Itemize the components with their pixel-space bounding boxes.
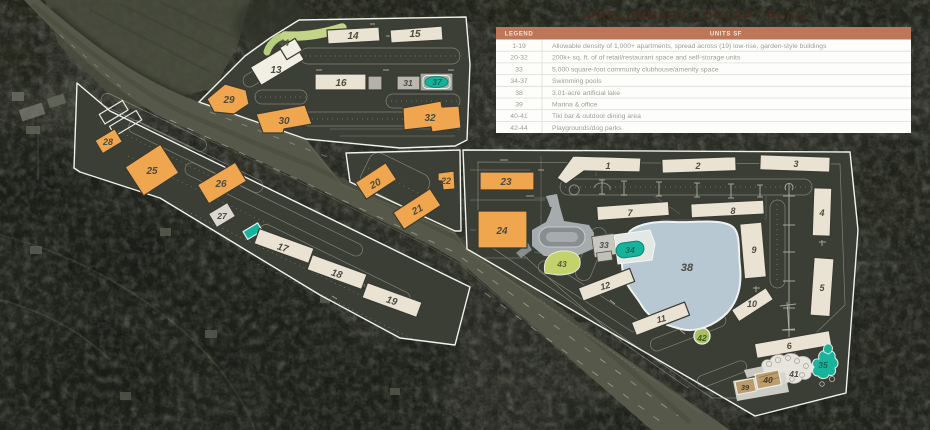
svg-text:42: 42 — [696, 333, 707, 343]
svg-text:1-19: 1-19 — [512, 43, 526, 50]
svg-text:30: 30 — [278, 116, 290, 127]
svg-text:26: 26 — [214, 179, 227, 190]
svg-text:5,000 square-foot community cl: 5,000 square-foot community clubhouse/am… — [552, 66, 719, 73]
svg-text:40-41: 40-41 — [510, 113, 528, 120]
svg-text:-PRELIMINARY CONCEPT PLAN-: -PRELIMINARY CONCEPT PLAN- — [582, 9, 812, 23]
svg-text:2: 2 — [694, 161, 700, 171]
svg-text:29: 29 — [222, 95, 235, 106]
svg-text:37: 37 — [432, 77, 443, 87]
svg-text:16: 16 — [335, 78, 347, 89]
svg-text:1: 1 — [605, 161, 610, 171]
svg-text:9: 9 — [751, 245, 756, 255]
svg-text:41: 41 — [788, 369, 799, 379]
svg-text:3.01-acre artificial lake: 3.01-acre artificial lake — [552, 90, 620, 97]
svg-text:43: 43 — [556, 259, 567, 269]
svg-text:Playgrounds/dog parks: Playgrounds/dog parks — [552, 125, 622, 132]
svg-text:Allowable density of 1,000+ ap: Allowable density of 1,000+ apartments, … — [552, 43, 827, 50]
svg-text:39: 39 — [515, 102, 523, 109]
svg-text:LEGEND: LEGEND — [505, 32, 534, 38]
svg-text:14: 14 — [347, 31, 359, 42]
svg-text:38: 38 — [681, 262, 694, 274]
svg-text:42-44: 42-44 — [510, 125, 528, 132]
svg-text:Tiki bar & outdoor dining area: Tiki bar & outdoor dining area — [552, 113, 641, 120]
svg-text:33: 33 — [599, 240, 609, 250]
svg-text:27: 27 — [216, 211, 228, 221]
svg-text:10: 10 — [747, 299, 757, 309]
svg-text:39: 39 — [741, 383, 750, 392]
svg-text:20-32: 20-32 — [510, 55, 528, 62]
svg-text:24: 24 — [495, 226, 508, 237]
svg-text:8: 8 — [730, 206, 735, 216]
svg-text:35: 35 — [818, 360, 828, 370]
svg-text:34-37: 34-37 — [510, 78, 528, 85]
svg-text:44: 44 — [278, 38, 289, 48]
svg-text:32: 32 — [424, 113, 436, 124]
svg-text:13: 13 — [270, 65, 282, 76]
svg-text:25: 25 — [145, 166, 158, 177]
svg-text:23: 23 — [499, 177, 512, 188]
svg-text:Marina & office: Marina & office — [552, 102, 597, 109]
svg-text:22: 22 — [440, 176, 451, 186]
svg-text:38: 38 — [515, 90, 523, 97]
svg-text:33: 33 — [515, 66, 523, 73]
svg-text:34: 34 — [625, 245, 635, 255]
svg-text:UNITS SF: UNITS SF — [710, 32, 742, 38]
svg-text:Swimming pools: Swimming pools — [552, 78, 602, 85]
svg-text:3: 3 — [793, 159, 798, 169]
svg-text:40: 40 — [762, 375, 773, 385]
svg-text:200k+ sq. ft. of of retail/res: 200k+ sq. ft. of of retail/restaurant sp… — [552, 55, 741, 62]
svg-text:31: 31 — [403, 78, 413, 88]
svg-text:15: 15 — [409, 29, 421, 40]
svg-text:4: 4 — [818, 208, 824, 218]
svg-text:28: 28 — [102, 137, 113, 147]
